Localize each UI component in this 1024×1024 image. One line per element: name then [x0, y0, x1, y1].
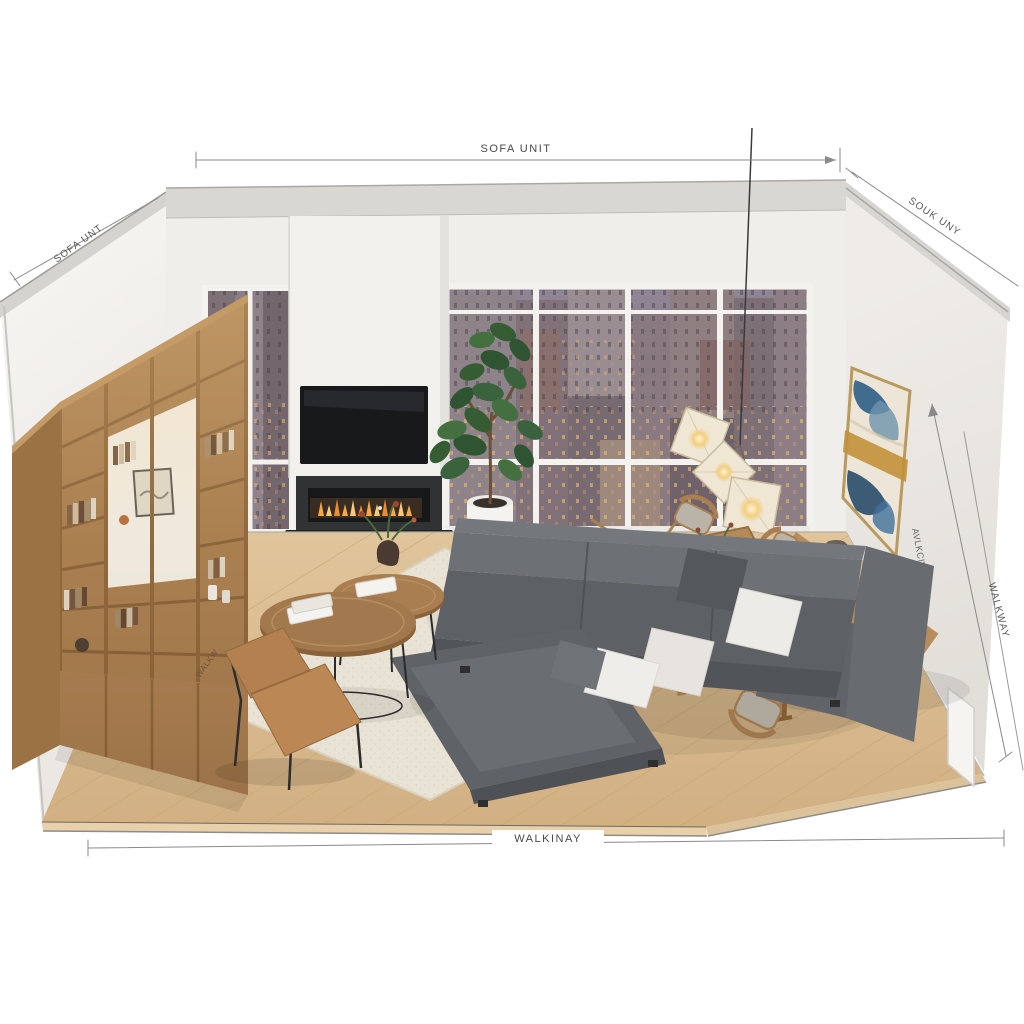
dim-label-sofa-unit-top: SOFA UNIT — [481, 143, 552, 155]
dimension-bottom: WALKINAY — [88, 830, 1004, 856]
tv — [300, 386, 428, 464]
interior-rendering-canvas: SOFA UNIT SOFA UNT SOUK UNY AVLKCIV WALK… — [0, 0, 1024, 1024]
isometric-room-rendering: SOFA UNIT SOFA UNT SOUK UNY AVLKCIV WALK… — [0, 0, 1024, 1024]
dim-label-walkway-bottom: WALKINAY — [514, 833, 582, 845]
fireplace-column — [266, 216, 472, 560]
dim-label-right-top: SOUK UNY — [906, 196, 962, 239]
dimension-top: SOFA UNIT — [196, 143, 840, 172]
